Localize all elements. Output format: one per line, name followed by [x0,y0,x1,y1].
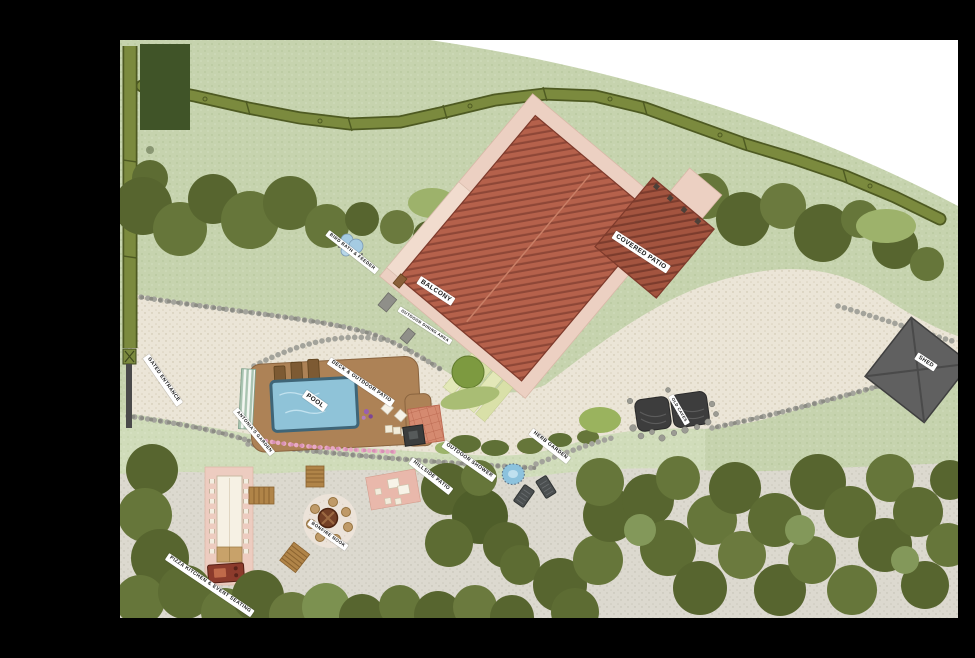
deck-chair [385,425,392,432]
gate-bar [126,364,132,428]
dark-tree-patch [140,44,190,130]
outdoor-shower [502,464,524,485]
round-bush [452,356,484,388]
site-plan-canvas: BIRD BATH & FEEDER BALCONY OUTDOOR DININ… [0,0,975,658]
hot-tub [403,425,425,447]
site-plan-drawing [0,0,975,658]
deck-chair [393,427,400,434]
pizza-kitchen [205,467,253,585]
